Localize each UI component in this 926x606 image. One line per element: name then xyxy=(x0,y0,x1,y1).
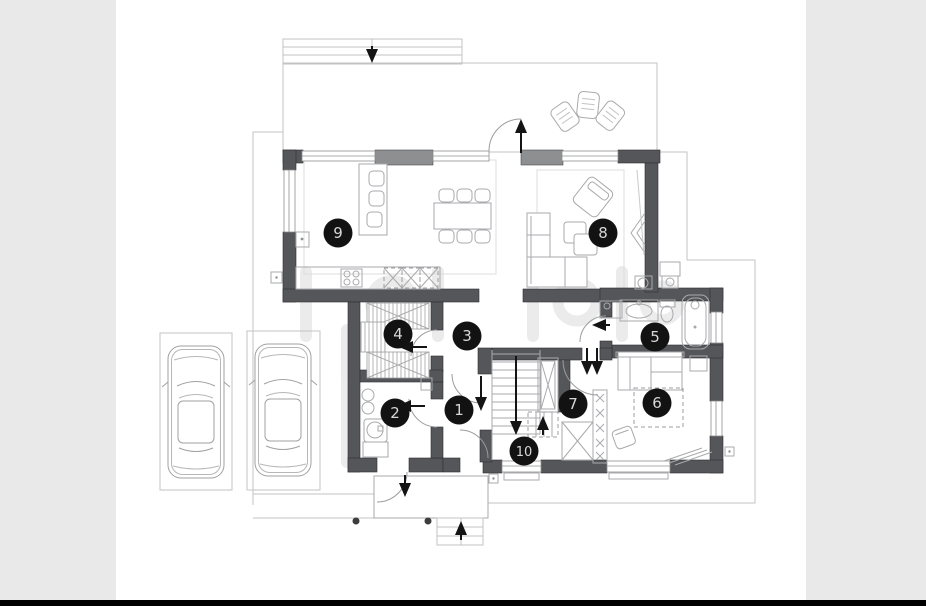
dining-chair xyxy=(475,230,490,243)
floor-plan-image: 1 2 3 4 5 6 7 8 xyxy=(0,0,926,606)
svg-text:4: 4 xyxy=(393,325,403,343)
pantry-shelf xyxy=(361,322,385,352)
dining-chair xyxy=(439,230,454,243)
room-marker-8: 8 xyxy=(589,219,618,248)
right-matte xyxy=(806,0,926,600)
room-marker-1: 1 xyxy=(445,396,474,425)
bottom-bar xyxy=(0,600,926,606)
svg-text:2: 2 xyxy=(390,404,400,422)
dining-chair xyxy=(439,189,454,202)
bar-stool xyxy=(369,171,384,186)
svg-text:10: 10 xyxy=(516,445,533,460)
porch-column xyxy=(425,518,432,525)
car-icon xyxy=(162,346,230,478)
room-marker-7: 7 xyxy=(559,390,588,419)
room-marker-4: 4 xyxy=(384,320,413,349)
room-marker-10: 10 xyxy=(510,437,539,466)
lounge-chair xyxy=(576,91,600,119)
svg-text:7: 7 xyxy=(568,395,578,413)
bar-stool xyxy=(369,191,384,206)
room-marker-3: 3 xyxy=(453,322,482,351)
viewer-backdrop xyxy=(0,0,926,606)
floor-plan-viewer: 1 2 3 4 5 6 7 8 xyxy=(0,0,926,606)
dining-chair xyxy=(475,189,490,202)
porch-column xyxy=(353,518,360,525)
window xyxy=(711,312,722,343)
svg-text:1: 1 xyxy=(454,401,464,419)
svg-text:6: 6 xyxy=(652,394,662,412)
room-marker-6: 6 xyxy=(643,389,672,418)
bed xyxy=(618,352,682,390)
window xyxy=(711,401,722,436)
room-marker-2: 2 xyxy=(381,399,410,428)
dining-table xyxy=(434,203,491,229)
dining-chair xyxy=(457,230,472,243)
dining-chair xyxy=(457,189,472,202)
dining-area xyxy=(434,189,491,243)
svg-text:8: 8 xyxy=(598,224,608,242)
svg-text:9: 9 xyxy=(333,224,343,242)
left-matte xyxy=(0,0,116,600)
svg-text:3: 3 xyxy=(462,327,472,345)
image-background xyxy=(0,0,926,606)
room-marker-5: 5 xyxy=(641,323,670,352)
svg-text:5: 5 xyxy=(650,328,660,346)
bar-stool xyxy=(367,212,382,227)
window xyxy=(284,170,295,232)
car-icon xyxy=(249,344,317,476)
room-marker-9: 9 xyxy=(324,219,353,248)
bedroom-french-door xyxy=(607,461,670,472)
